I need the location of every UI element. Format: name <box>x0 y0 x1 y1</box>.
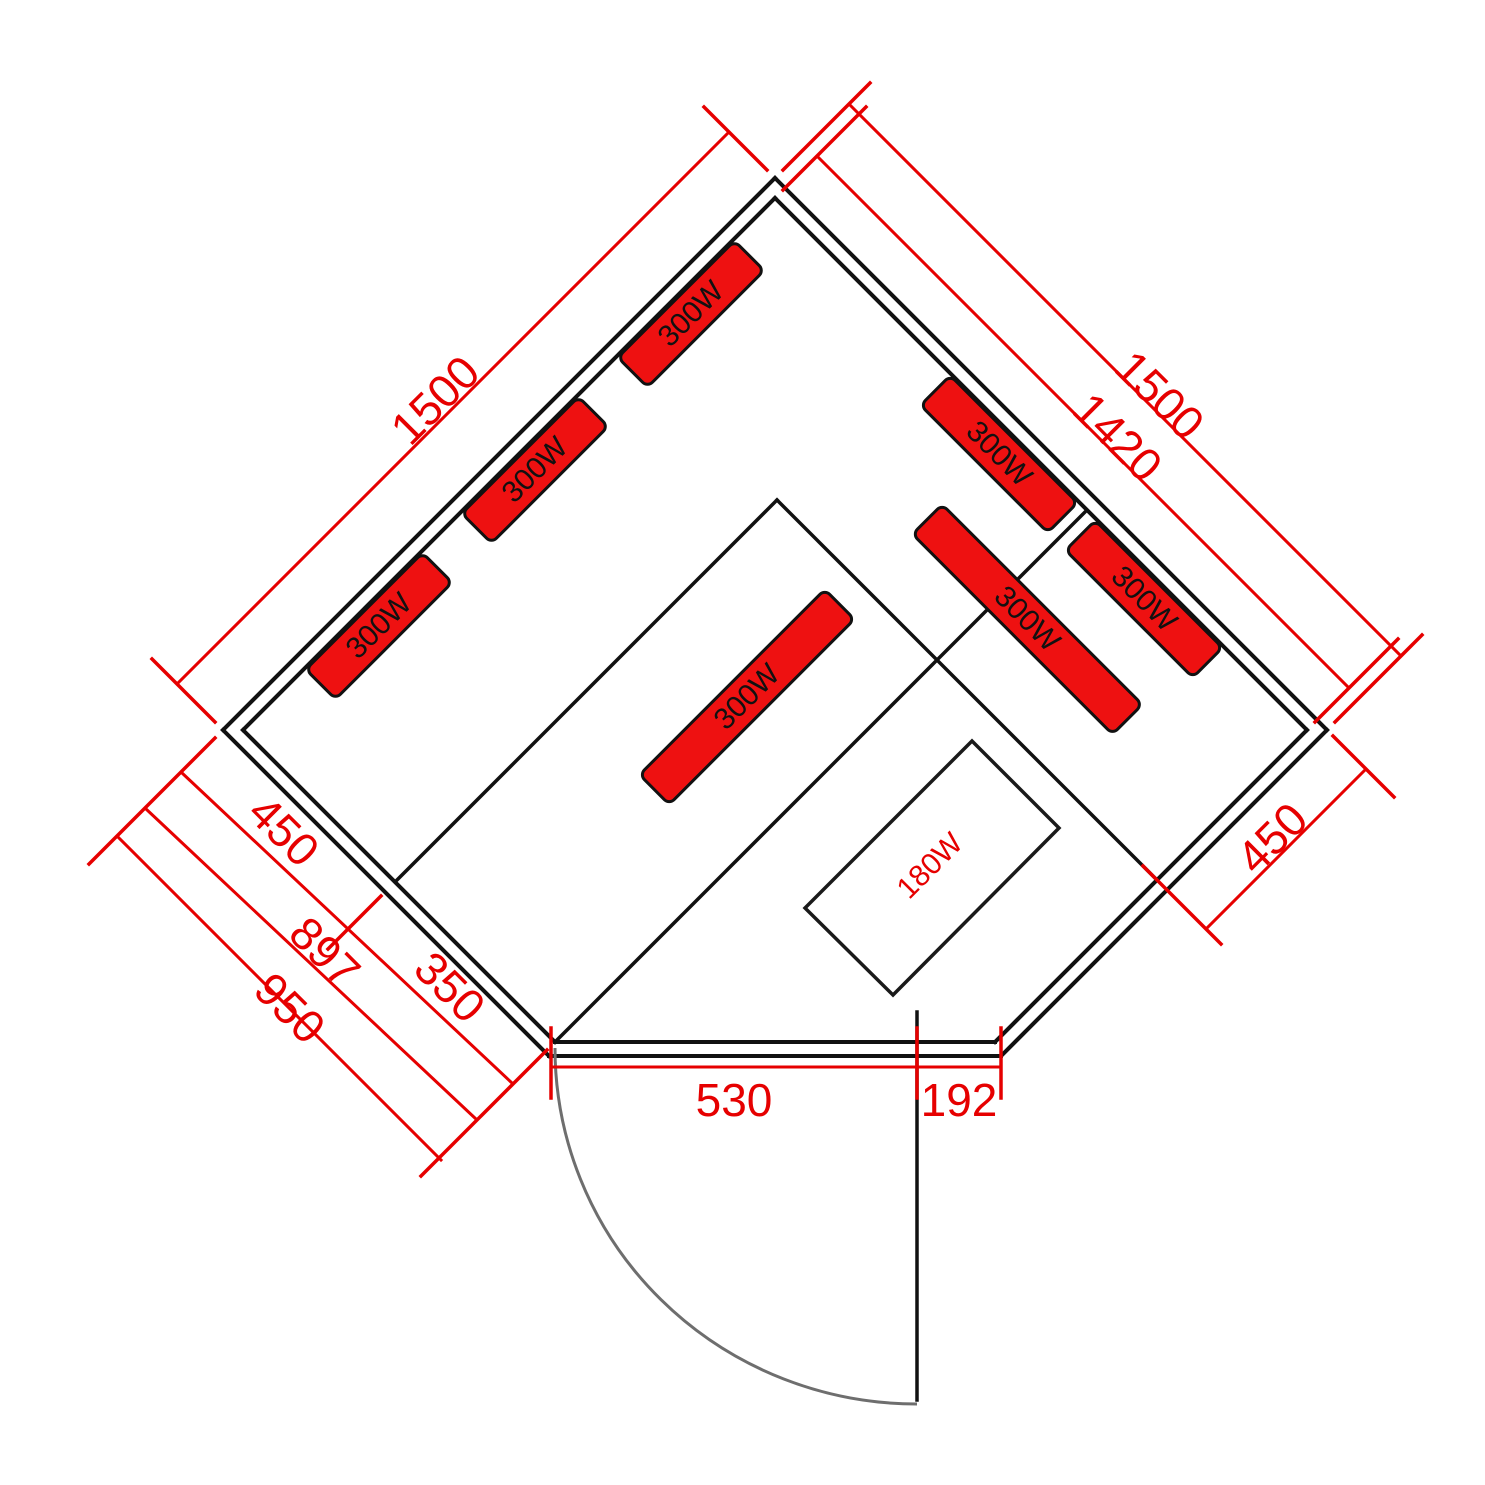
label-left-1500: 1500 <box>380 345 489 454</box>
ext-west-left <box>152 659 215 722</box>
heater-bench-front-center: 300W <box>640 590 855 805</box>
sauna-plan-sheet: 180W 300W 300W 300W 300W 300W 300W <box>0 0 1485 1485</box>
ext-apex-left <box>704 107 767 170</box>
ext-east-side <box>1333 736 1394 797</box>
dimension-labels: 1500 1500 1420 450 350 897 950 450 530 1… <box>238 340 1317 1126</box>
wall-lower-right-inner <box>995 730 1307 1042</box>
wall-upper-left-outer <box>223 178 775 730</box>
label-450-left: 450 <box>238 785 329 876</box>
ext-west-side <box>89 738 215 864</box>
wall-lower-right-outer <box>1001 730 1327 1056</box>
ext-east-inner <box>1315 639 1398 722</box>
label-450-right: 450 <box>1226 792 1317 883</box>
label-530-door: 530 <box>696 1074 773 1126</box>
ext-apex-right-inner <box>783 107 866 190</box>
ext-door-left-corner <box>421 1050 547 1176</box>
floor-heater: 180W <box>805 741 1059 995</box>
ext-apex-right-outer <box>783 83 870 170</box>
ext-east-outer <box>1335 635 1422 722</box>
bench-lines <box>395 500 1157 1042</box>
infrared-heaters: 300W 300W 300W 300W 300W 300W 300W <box>306 241 1223 805</box>
bench-front-left-edge <box>395 500 777 882</box>
label-350-left: 350 <box>404 941 495 1032</box>
wall-upper-left-inner <box>243 198 775 730</box>
door <box>555 1012 917 1404</box>
label-192-panel: 192 <box>921 1074 998 1126</box>
floor-plan-drawing: 180W 300W 300W 300W 300W 300W 300W <box>0 0 1485 1485</box>
